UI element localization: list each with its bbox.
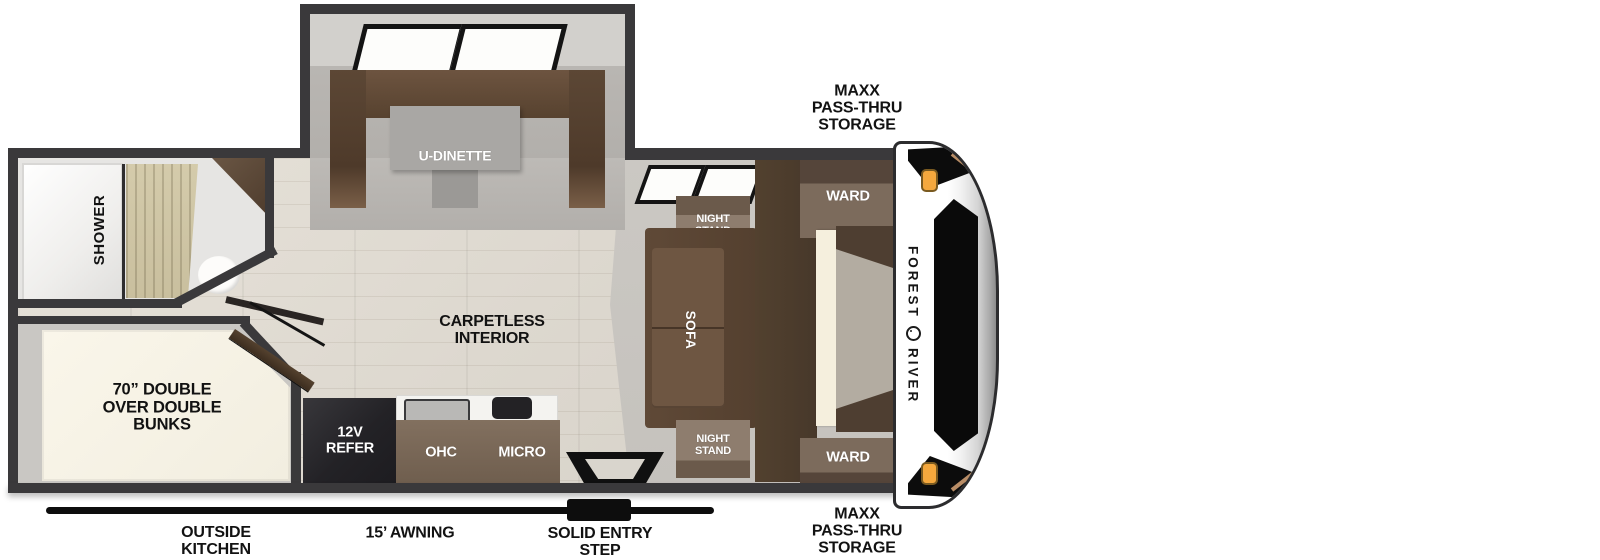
wall — [625, 148, 900, 160]
night-stand-bottom-label: NIGHT STAND — [695, 434, 731, 458]
dinette-window-icon — [352, 24, 559, 70]
brand-word-forest: FOREST — [906, 246, 921, 319]
shower-label: SHOWER — [92, 195, 108, 266]
wall — [8, 148, 18, 492]
entry-step-icon — [567, 499, 631, 521]
ward-bottom-label: WARD — [826, 450, 870, 466]
marker-light-bottom — [921, 462, 938, 485]
entry-step-label: SOLID ENTRY STEP — [548, 525, 653, 559]
carpetless-label: CARPETLESS INTERIOR — [439, 313, 545, 347]
cap-decal-top — [908, 146, 986, 188]
cap-decal-bottom — [908, 456, 986, 498]
forest-river-emblem-icon — [906, 326, 921, 341]
wall — [291, 372, 301, 492]
ohc-label: OHC — [425, 445, 457, 461]
awning-label: 15’ AWNING — [366, 524, 455, 541]
front-cap: FOREST RIVER — [893, 141, 999, 509]
brand-logo: FOREST RIVER — [900, 188, 926, 462]
brand-word-river: RIVER — [906, 348, 921, 404]
outside-kitchen-label: OUTSIDE KITCHEN — [181, 524, 251, 558]
dinette-bench-arm — [569, 70, 605, 208]
wall — [10, 316, 250, 324]
wall — [10, 299, 182, 308]
wall — [8, 483, 900, 493]
murphy-bed-panel — [816, 230, 836, 426]
wall — [265, 158, 274, 258]
wall — [8, 148, 310, 158]
ward-top-label: WARD — [826, 189, 870, 205]
dinette-bench-arm — [330, 70, 366, 208]
sofa-label: SOFA — [683, 311, 697, 350]
cap-windshield-decal — [934, 199, 978, 451]
bedroom-window-icon — [637, 165, 760, 196]
shower-glass-divider — [122, 164, 125, 303]
bunks-label: 70” DOUBLE OVER DOUBLE BUNKS — [103, 382, 222, 435]
wall — [300, 4, 310, 156]
refer-label: 12V REFER — [326, 426, 374, 457]
dinette-label: U-DINETTE — [419, 149, 492, 164]
dinette-table-pedestal — [432, 168, 478, 208]
floorplan-canvas: U-DINETTE SHOWER 70” DOUBLE OVER DOUBLE … — [0, 0, 1600, 560]
storage-bottom-label: MAXX PASS-THRU STORAGE — [812, 505, 902, 556]
wall — [300, 4, 635, 14]
micro-label: MICRO — [498, 445, 545, 461]
shower-curtain — [126, 164, 198, 298]
wall — [625, 4, 635, 156]
storage-top-label: MAXX PASS-THRU STORAGE — [812, 82, 902, 133]
sink-icon — [492, 397, 532, 419]
